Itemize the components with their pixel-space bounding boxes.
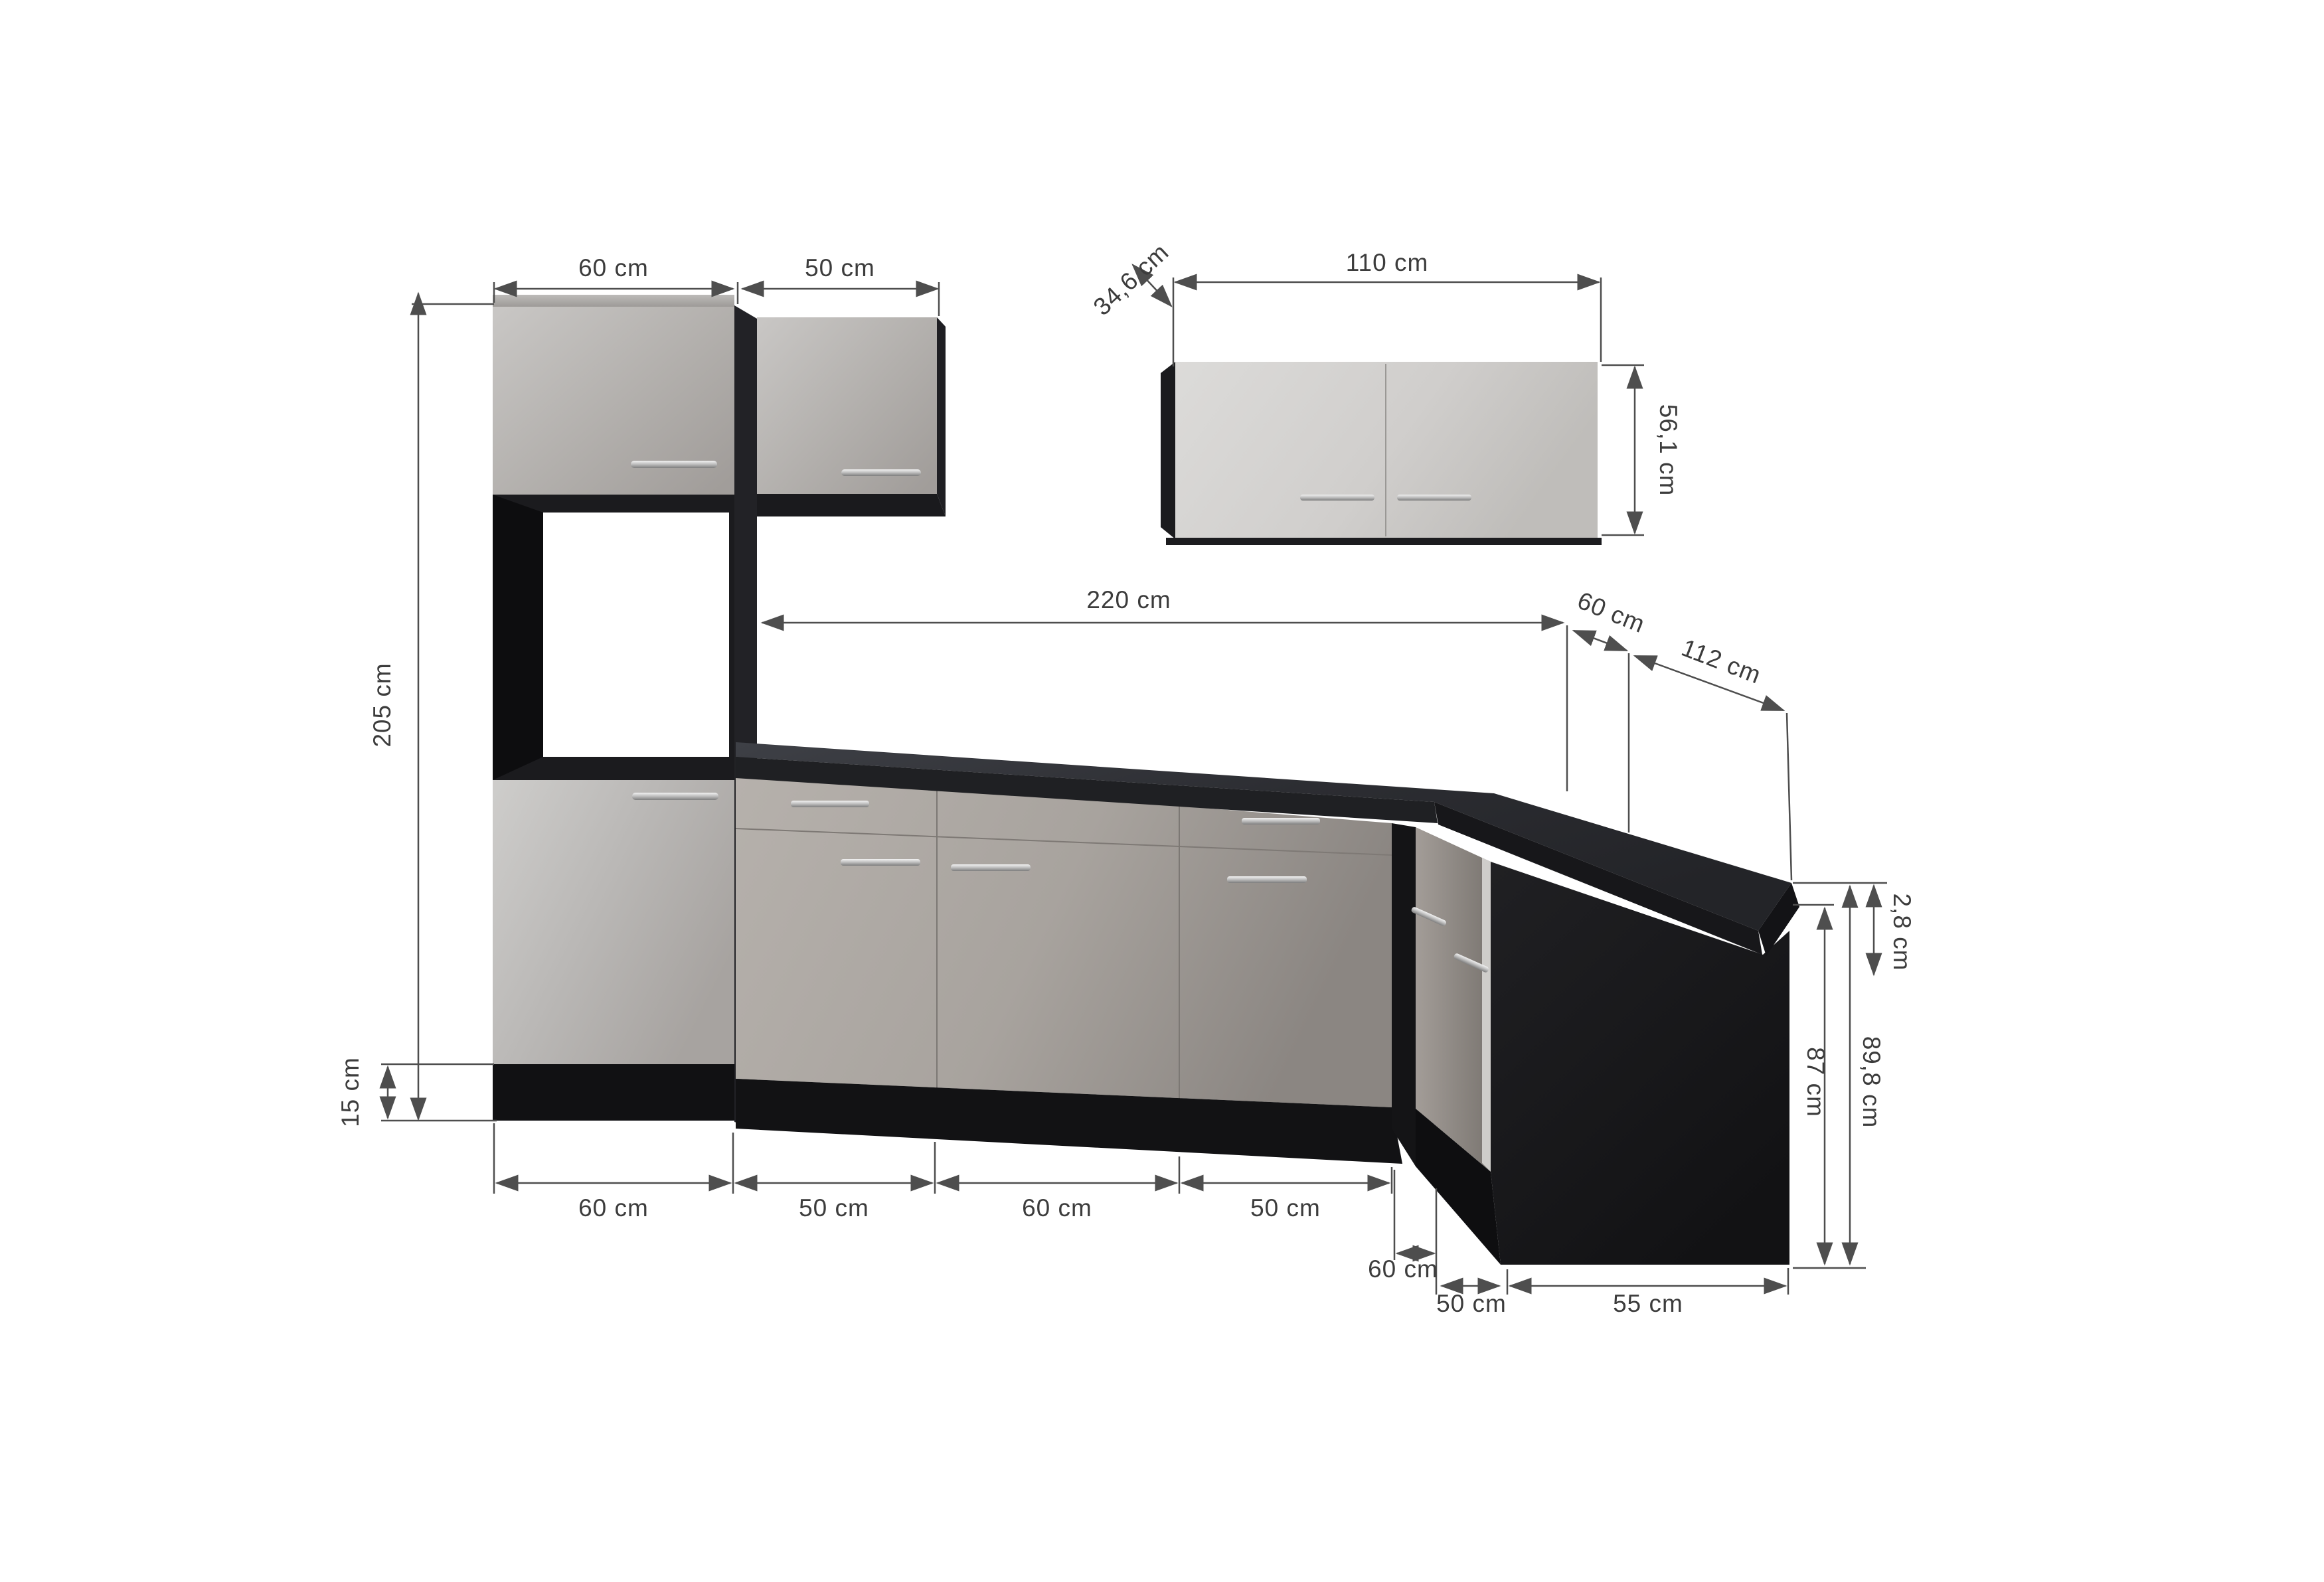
wall-cabinet-handle-left	[1300, 495, 1374, 501]
tall-unit-top-surface	[493, 295, 734, 307]
label-height-205: 205 cm	[369, 663, 396, 747]
base-door-handle-2	[951, 864, 1031, 871]
label-wall-110: 110 cm	[1346, 249, 1429, 276]
tall-unit-lower-door	[493, 780, 734, 1064]
base-door-handle-1	[841, 859, 920, 866]
label-worktop-220: 220 cm	[1086, 586, 1171, 613]
label-wall-depth-346: 34,6 cm	[1088, 238, 1174, 321]
label-upper-60: 60 cm	[578, 254, 649, 281]
label-upper-50: 50 cm	[805, 254, 875, 281]
tall-unit-upper-door-handle	[631, 461, 717, 468]
wall-cabinet-bottom-shadow	[1166, 538, 1602, 545]
tall-unit-plinth	[493, 1064, 734, 1121]
label-thickness-28: 2,8 cm	[1888, 893, 1916, 971]
label-base-50a: 50 cm	[799, 1194, 869, 1222]
upper-cabinet-50-door	[757, 317, 937, 494]
tall-unit-lower-door-handle	[632, 793, 718, 800]
return-front-edge-highlight	[1482, 858, 1491, 1172]
wall-cabinet-left-side	[1161, 362, 1175, 539]
kitchen-dimension-diagram: 60 cm 50 cm 110 cm 34,6 cm 56,1 cm 205 c…	[0, 0, 2324, 1582]
upper-cabinet-50-handle	[841, 469, 921, 476]
base-door-handle-3	[1227, 876, 1307, 883]
label-base-60a: 60 cm	[578, 1194, 649, 1222]
oven-niche-left-depth	[493, 495, 543, 780]
label-base-60b: 60 cm	[1022, 1194, 1092, 1222]
dim-line-return60	[1574, 631, 1627, 651]
upper-cabinet-50-side	[937, 317, 946, 516]
corner-gap	[1392, 823, 1416, 1166]
label-right-55: 55 cm	[1613, 1290, 1683, 1317]
label-return-60: 60 cm	[1574, 587, 1649, 639]
label-height-898: 89,8 cm	[1858, 1036, 1885, 1129]
diagram-canvas: 60 cm 50 cm 110 cm 34,6 cm 56,1 cm 205 c…	[0, 0, 2324, 1582]
upper-cabinet-50-bottom	[757, 494, 946, 516]
label-plinth-15: 15 cm	[337, 1057, 364, 1127]
label-wall-height-561: 56,1 cm	[1655, 404, 1682, 497]
label-right-50: 50 cm	[1436, 1290, 1507, 1317]
ext-112	[1787, 713, 1791, 880]
label-return-112: 112 cm	[1678, 634, 1765, 689]
label-base-50b: 50 cm	[1250, 1194, 1321, 1222]
base-drawer-handle-1	[791, 801, 869, 807]
oven-niche-opening	[543, 513, 729, 757]
wall-cabinet-handle-right	[1397, 495, 1471, 501]
base-drawer-handle-2	[1242, 818, 1320, 825]
label-corner-60: 60 cm	[1368, 1255, 1438, 1283]
label-height-87: 87 cm	[1802, 1047, 1829, 1117]
